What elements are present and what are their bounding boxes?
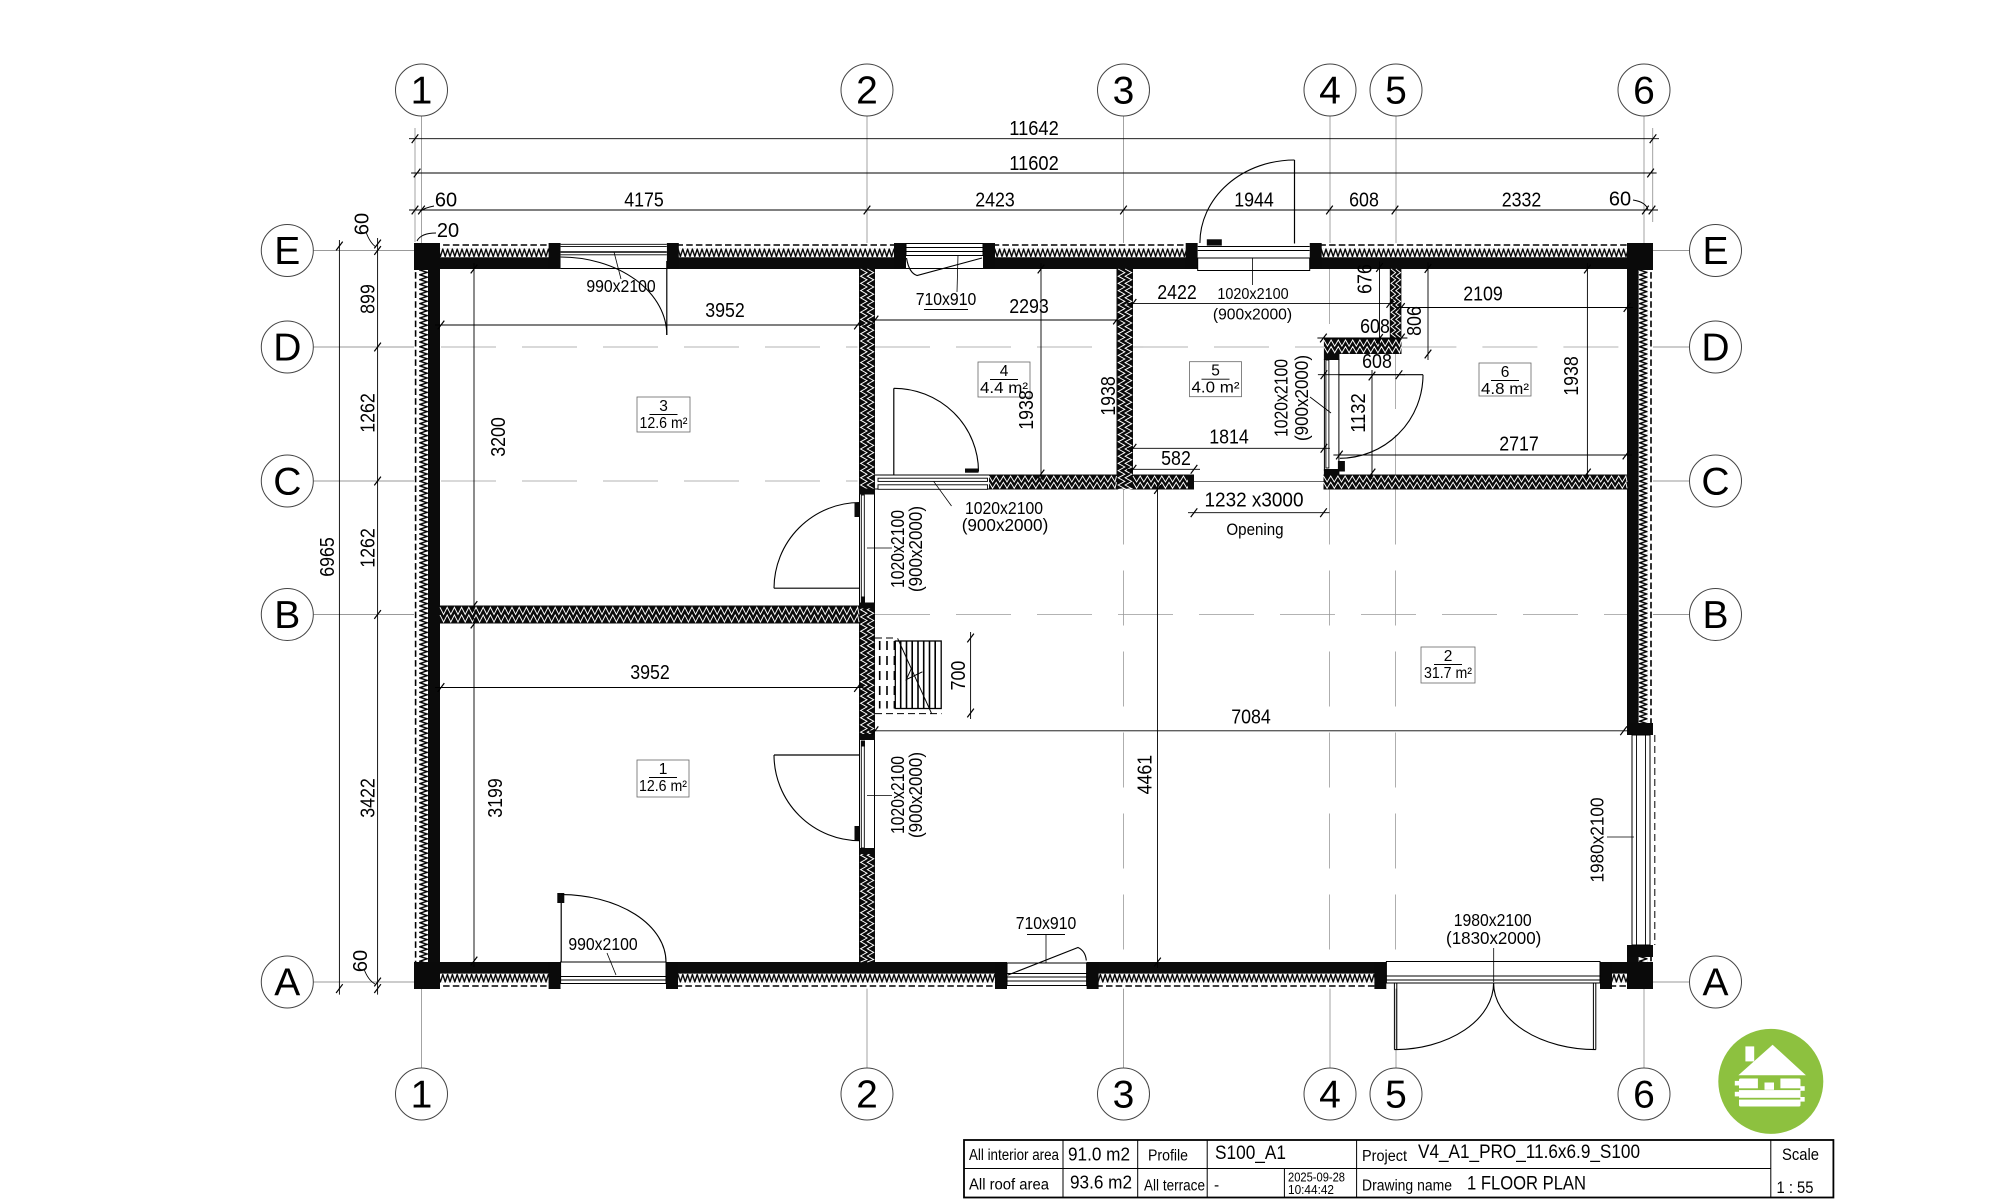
svg-text:Opening: Opening [1226,521,1283,539]
svg-text:4: 4 [1000,363,1009,380]
svg-text:4: 4 [1319,70,1341,113]
svg-text:3: 3 [659,398,668,415]
svg-text:1262: 1262 [358,393,380,433]
svg-text:A: A [1702,962,1728,1005]
svg-text:1938: 1938 [1561,356,1583,396]
svg-text:12.6 m²: 12.6 m² [639,778,687,795]
svg-text:5: 5 [1211,363,1220,380]
svg-text:2293: 2293 [1009,296,1049,318]
svg-text:All terrace: All terrace [1144,1178,1205,1195]
svg-text:10:44:42: 10:44:42 [1288,1183,1334,1197]
svg-text:31.7 m²: 31.7 m² [1424,665,1472,682]
svg-text:2: 2 [856,70,878,113]
svg-text:Profile: Profile [1148,1148,1188,1165]
svg-text:582: 582 [1161,448,1191,470]
svg-text:60: 60 [350,950,372,972]
svg-text:4461: 4461 [1135,755,1157,795]
svg-text:C: C [273,461,301,504]
svg-text:3952: 3952 [630,662,670,684]
svg-text:(900x2000): (900x2000) [962,515,1049,535]
svg-text:4.0 m²: 4.0 m² [1192,380,1240,397]
svg-text:608: 608 [1349,190,1379,212]
svg-text:60: 60 [435,190,457,212]
svg-text:2: 2 [1444,648,1453,665]
svg-text:(900x2000): (900x2000) [1213,307,1292,324]
svg-text:3199: 3199 [485,778,507,818]
svg-text:B: B [274,594,300,637]
svg-text:60: 60 [352,213,374,235]
svg-text:1938: 1938 [1016,390,1038,430]
svg-text:12.6 m²: 12.6 m² [640,415,688,432]
svg-text:6: 6 [1501,364,1510,381]
svg-text:1262: 1262 [358,528,380,568]
svg-text:1980x2100: 1980x2100 [1454,910,1532,930]
svg-text:11642: 11642 [1009,118,1059,140]
svg-text:A: A [274,962,300,1005]
svg-text:(900x2000): (900x2000) [906,752,926,838]
svg-text:(900x2000): (900x2000) [906,506,926,592]
svg-text:1938: 1938 [1098,376,1120,416]
svg-text:1: 1 [411,70,433,113]
svg-text:1980x2100: 1980x2100 [1588,798,1608,883]
svg-text:2717: 2717 [1499,434,1539,456]
svg-text:1 FLOOR PLAN: 1 FLOOR PLAN [1467,1174,1586,1195]
svg-text:1814: 1814 [1209,427,1249,449]
svg-text:4: 4 [1319,1074,1341,1117]
svg-text:710x910: 710x910 [1016,913,1077,933]
svg-text:710x910: 710x910 [916,289,977,309]
svg-text:1020x2100: 1020x2100 [1272,359,1292,437]
svg-text:7084: 7084 [1231,707,1271,729]
svg-text:(900x2000): (900x2000) [1292,355,1312,441]
svg-text:Project: Project [1362,1148,1408,1165]
svg-text:5: 5 [1385,1074,1407,1117]
svg-text:Drawing name: Drawing name [1362,1178,1452,1195]
svg-text:(1830x2000): (1830x2000) [1446,928,1541,948]
svg-text:D: D [273,327,301,370]
svg-text:91.0 m2: 91.0 m2 [1068,1144,1130,1165]
svg-text:1: 1 [659,761,668,778]
svg-text:1232 x3000: 1232 x3000 [1205,490,1304,512]
svg-text:93.6 m2: 93.6 m2 [1070,1172,1132,1193]
svg-text:All roof area: All roof area [969,1177,1049,1194]
svg-text:C: C [1701,461,1729,504]
svg-text:700: 700 [948,661,970,691]
svg-text:S100_A1: S100_A1 [1215,1143,1286,1164]
svg-text:899: 899 [358,284,380,314]
svg-text:3200: 3200 [488,417,510,457]
svg-text:D: D [1701,327,1729,370]
svg-text:1 : 55: 1 : 55 [1777,1179,1814,1197]
svg-text:5: 5 [1385,70,1407,113]
svg-text:2423: 2423 [975,190,1015,212]
svg-text:B: B [1702,594,1728,637]
svg-text:3952: 3952 [705,300,745,322]
svg-text:2422: 2422 [1157,282,1197,304]
svg-text:990x2100: 990x2100 [568,934,638,954]
svg-text:6965: 6965 [317,537,339,577]
svg-text:1020x2100: 1020x2100 [1217,286,1288,303]
svg-text:806: 806 [1404,306,1426,336]
svg-text:3: 3 [1113,1074,1135,1117]
svg-text:676: 676 [1355,264,1377,294]
svg-text:Scale: Scale [1782,1146,1819,1164]
svg-text:E: E [274,230,300,273]
svg-text:V4_A1_PRO_11.6x6.9_S100: V4_A1_PRO_11.6x6.9_S100 [1418,1142,1640,1163]
svg-text:2: 2 [856,1074,878,1117]
svg-text:60: 60 [1609,189,1631,211]
svg-text:20: 20 [437,220,459,242]
svg-text:11602: 11602 [1009,153,1059,175]
svg-text:990x2100: 990x2100 [586,276,656,296]
svg-text:All interior area: All interior area [969,1147,1059,1164]
svg-text:1020x2100: 1020x2100 [888,510,908,588]
svg-text:608: 608 [1360,316,1390,338]
svg-text:3: 3 [1113,70,1135,113]
svg-text:4.8 m²: 4.8 m² [1481,381,1529,398]
svg-text:608: 608 [1362,351,1392,373]
svg-text:4175: 4175 [624,190,664,212]
svg-text:1944: 1944 [1234,190,1274,212]
svg-text:1020x2100: 1020x2100 [888,756,908,834]
svg-text:E: E [1702,230,1728,273]
svg-text:1: 1 [411,1074,433,1117]
svg-text:3422: 3422 [358,778,380,818]
svg-text:2332: 2332 [1502,190,1542,212]
svg-text:-: - [1214,1177,1219,1194]
svg-text:6: 6 [1633,1074,1655,1117]
svg-text:1132: 1132 [1348,393,1370,433]
svg-text:6: 6 [1633,70,1655,113]
svg-text:2109: 2109 [1463,284,1503,306]
